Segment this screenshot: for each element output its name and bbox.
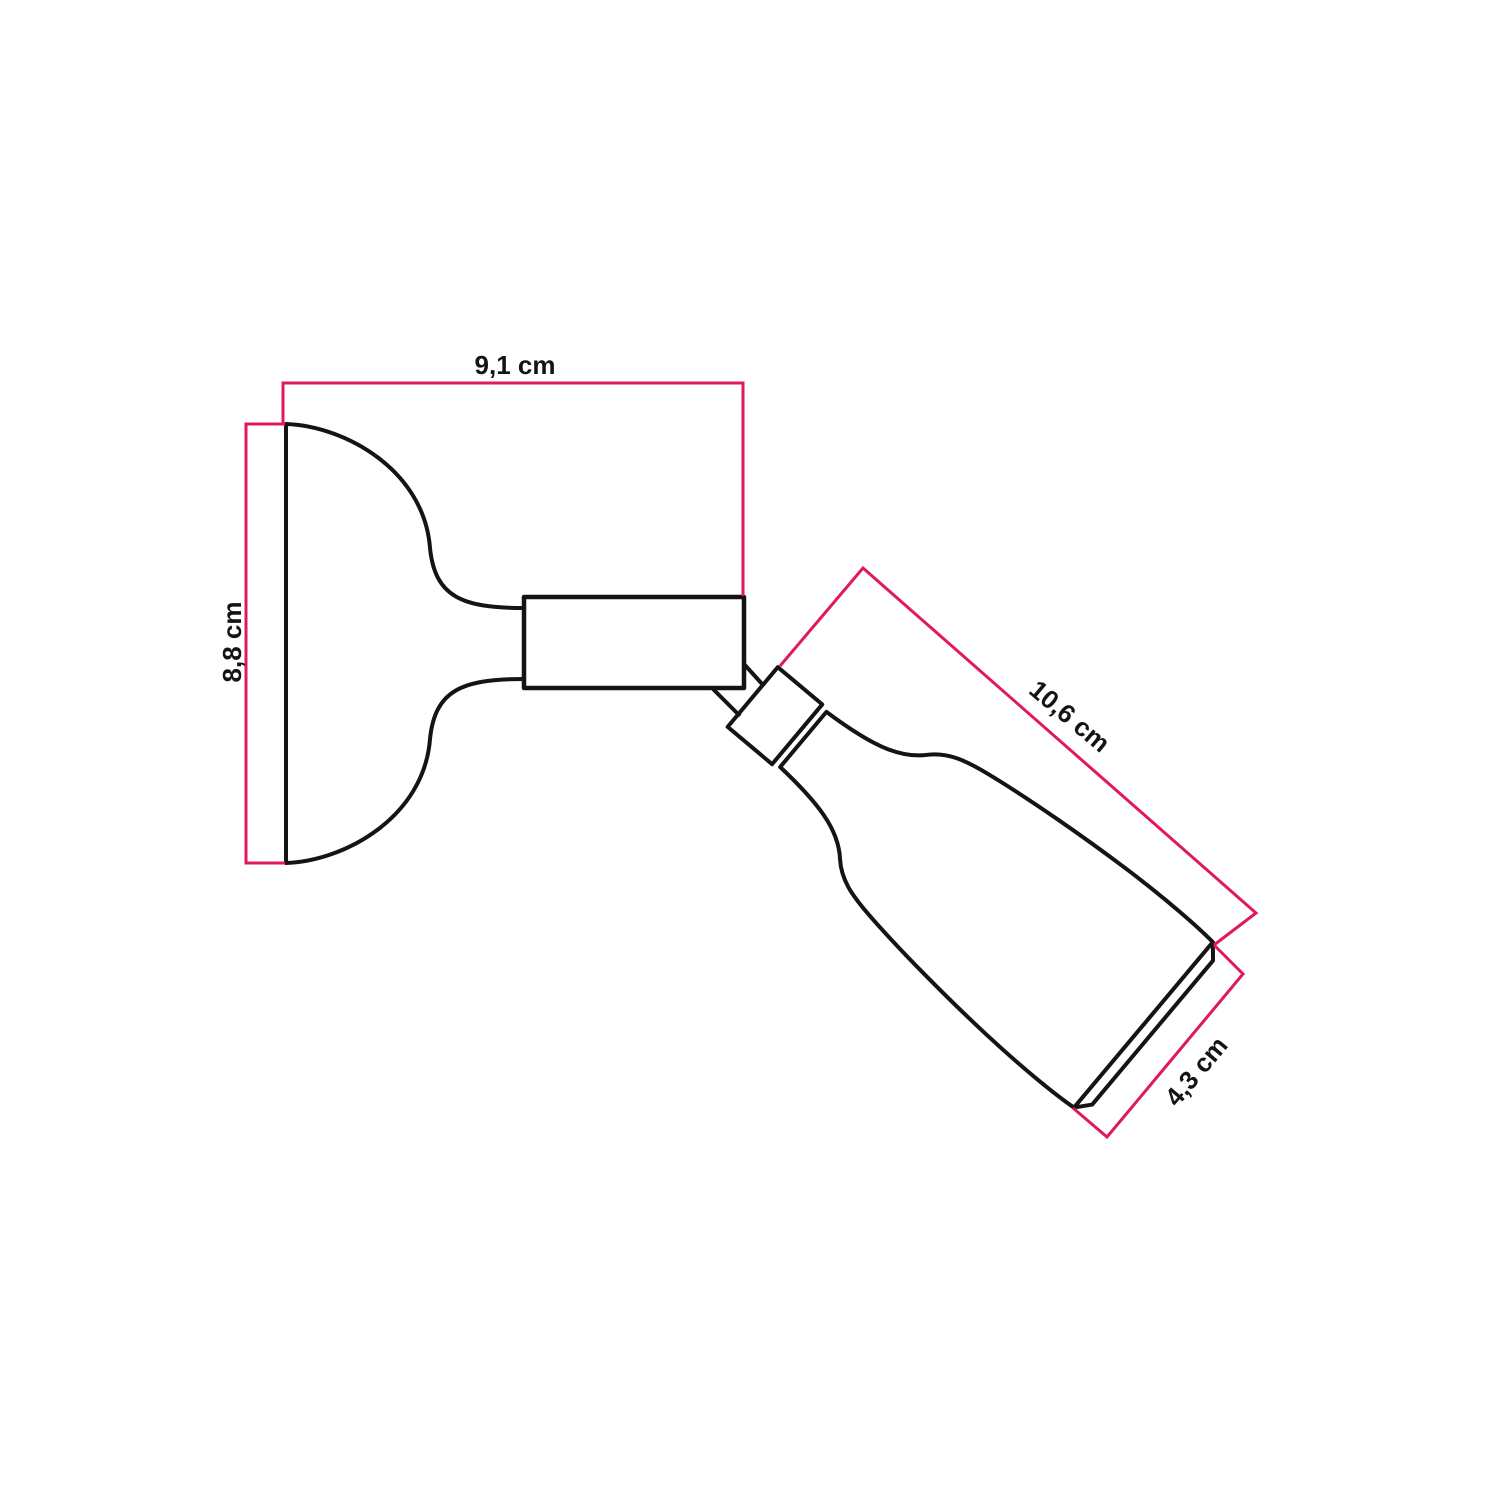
dimension-diagram-page: 9,1 cm 8,8 cm 10,6 cm 4,3 cm xyxy=(0,0,1500,1500)
dimension-top-width-label: 9,1 cm xyxy=(475,350,556,380)
dimension-diagram: 9,1 cm 8,8 cm 10,6 cm 4,3 cm xyxy=(0,0,1500,1500)
dimension-left-height-label: 8,8 cm xyxy=(217,602,247,683)
canvas-background xyxy=(0,0,1500,1500)
